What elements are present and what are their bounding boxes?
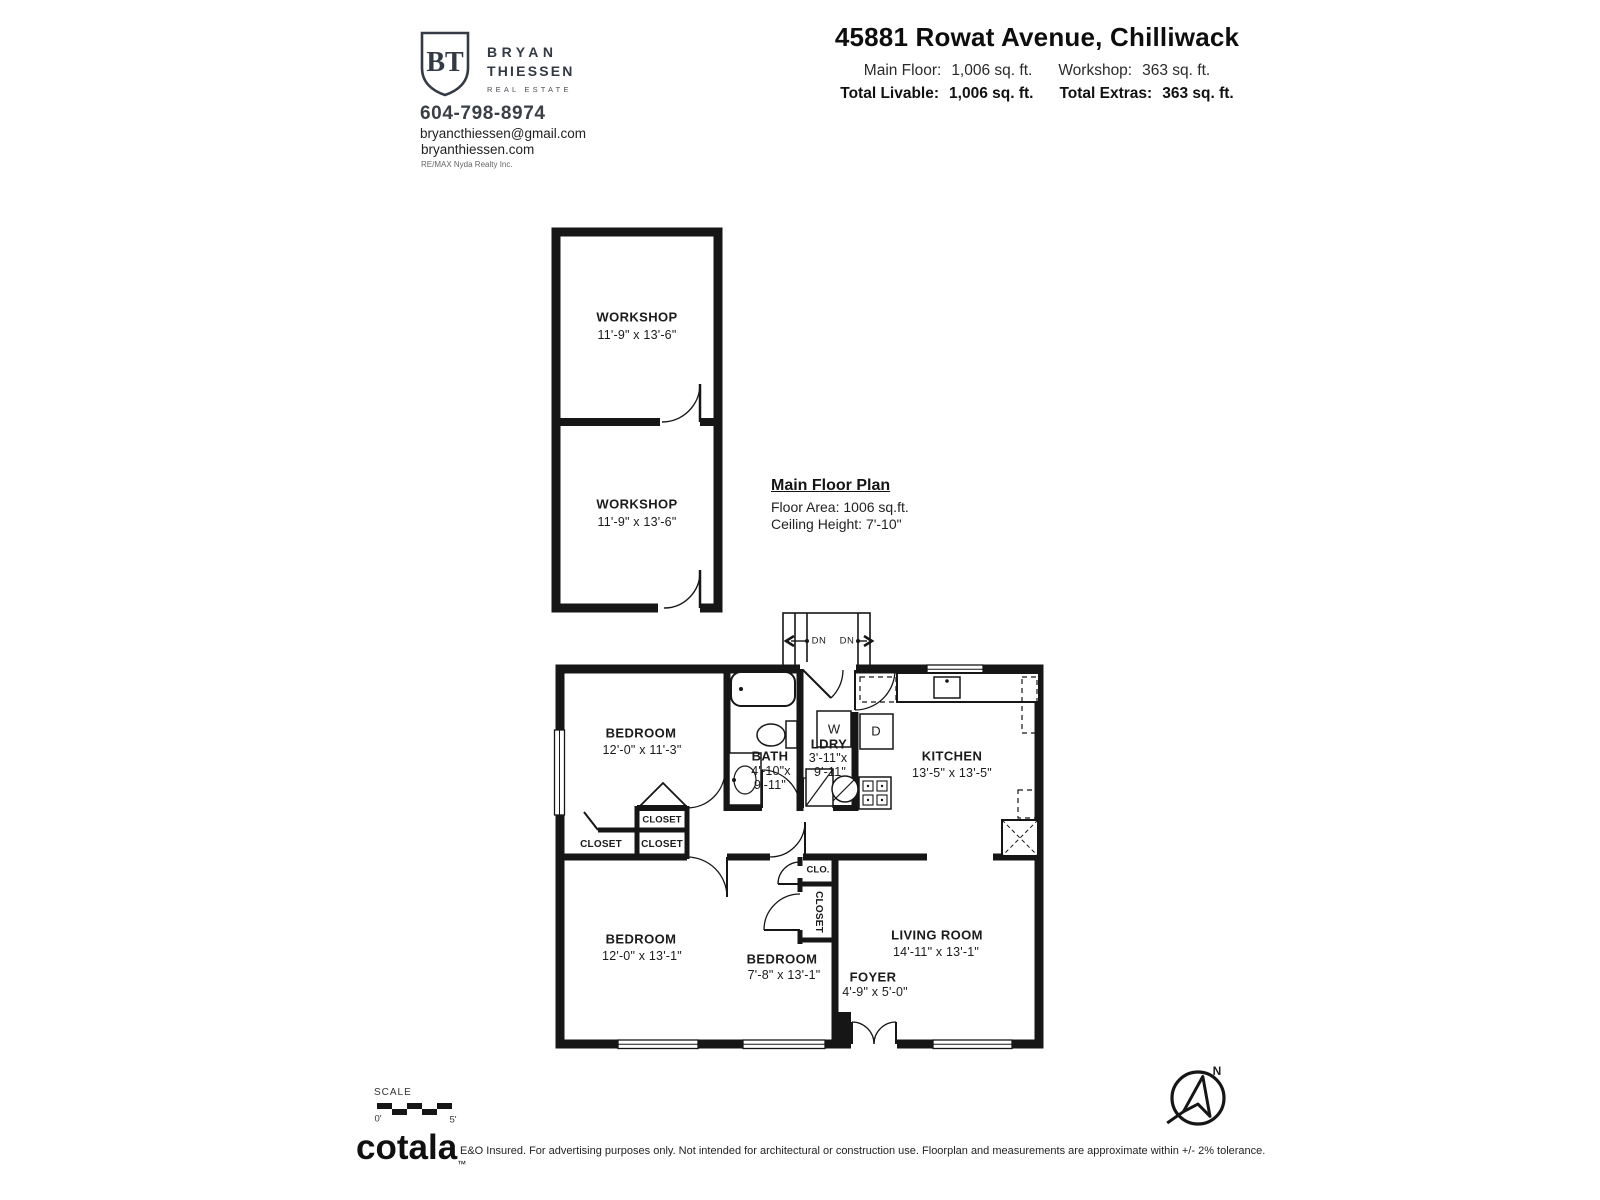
- plan-note-floor-area: Floor Area: 1006 sq.ft.: [771, 499, 909, 516]
- workshop-walls: [552, 232, 718, 617]
- area-totals-row: Total Livable:1,006 sq. ft.Total Extras:…: [817, 85, 1257, 103]
- room-label-workshop2: WORKSHOP: [596, 498, 677, 511]
- closet-label-clo: CLO.: [806, 865, 829, 875]
- room-dims-bedroom3: 7'-8" x 13'-1": [748, 969, 821, 982]
- dryer-label: D: [871, 725, 880, 738]
- agent-phone: 604-798-8974: [420, 103, 546, 125]
- agent-last-name: THIESSEN: [487, 63, 575, 79]
- room-label-bath: BATH: [752, 750, 789, 763]
- scale-start-label: 0': [374, 1114, 381, 1125]
- room-dims-bath-2: 9'-11": [754, 779, 786, 792]
- listing-header: 45881 Rowat Avenue, Chilliwack Main Floo…: [817, 22, 1257, 103]
- room-dims-kitchen: 13'-5" x 13'-5": [912, 767, 992, 780]
- cotala-trademark: ™: [457, 1159, 466, 1169]
- room-label-living-room: LIVING ROOM: [891, 929, 983, 942]
- workshop-label: Workshop:: [1058, 62, 1132, 79]
- stairs-down-label-1: DN: [812, 636, 827, 646]
- main-floor-value: 1,006 sq. ft.: [951, 62, 1032, 79]
- room-dims-workshop1: 11'-9" x 13'-6": [598, 329, 677, 342]
- room-dims-bath-1: 4'-10"x: [751, 765, 791, 778]
- listing-address-title: 45881 Rowat Avenue, Chilliwack: [817, 22, 1257, 53]
- closet-label-mid: CLOSET: [641, 840, 683, 850]
- room-label-bedroom3: BEDROOM: [747, 953, 818, 966]
- workshop-value: 363 sq. ft.: [1142, 62, 1210, 79]
- room-label-workshop1: WORKSHOP: [596, 311, 677, 324]
- agent-logo-initials: BT: [426, 47, 464, 78]
- cotala-logo-text: cotala: [356, 1128, 457, 1167]
- closet-label-top: CLOSET: [642, 815, 681, 825]
- plan-note-ceiling-height: Ceiling Height: 7'-10": [771, 516, 909, 533]
- stairs-down-label-2: DN: [840, 636, 855, 646]
- north-arrow-icon: [1167, 1072, 1224, 1130]
- main-floor-plan-note: Main Floor Plan Floor Area: 1006 sq.ft. …: [771, 477, 909, 533]
- scale-label: SCALE: [374, 1087, 412, 1098]
- north-label: N: [1213, 1064, 1222, 1078]
- area-stats-row: Main Floor:1,006 sq. ft.Workshop:363 sq.…: [817, 62, 1257, 80]
- scale-bar: [377, 1103, 452, 1115]
- closet-label-vertical: CLOSET: [813, 891, 823, 933]
- agent-email: bryancthiessen@gmail.com: [420, 126, 586, 141]
- disclaimer-text: E&O Insured. For advertising purposes on…: [460, 1145, 1265, 1157]
- washer-label: W: [828, 723, 840, 736]
- room-label-bedroom1: BEDROOM: [606, 727, 677, 740]
- room-label-bedroom2: BEDROOM: [606, 933, 677, 946]
- agent-first-name: BRYAN: [487, 44, 575, 60]
- room-label-laundry: LDRY: [811, 738, 848, 751]
- closet-label-left: CLOSET: [580, 840, 622, 850]
- scale-end-label: 5': [449, 1115, 456, 1126]
- agent-brokerage: RE/MAX Nyda Realty Inc.: [421, 160, 513, 169]
- room-dims-laundry-2: 9'-11": [814, 766, 846, 779]
- room-dims-bedroom2: 12'-0" x 13'-1": [602, 950, 682, 963]
- room-dims-living-room: 14'-11" x 13'-1": [893, 946, 979, 959]
- floorplan-linework: [0, 0, 1600, 1200]
- total-livable-value: 1,006 sq. ft.: [949, 85, 1033, 102]
- agent-brand: BRYAN THIESSEN REAL ESTATE: [487, 44, 575, 94]
- agent-logo-shield-icon: BT: [418, 30, 472, 98]
- room-dims-foyer: 4'-9" x 5'-0": [842, 986, 908, 999]
- kitchen-fixtures: [859, 673, 1039, 856]
- floorplan-page: BT BRYAN THIESSEN REAL ESTATE 604-798-89…: [0, 0, 1600, 1200]
- stairs: [783, 613, 872, 666]
- total-extras-value: 363 sq. ft.: [1162, 85, 1234, 102]
- agent-tagline: REAL ESTATE: [487, 85, 575, 94]
- room-dims-bedroom1: 12'-0" x 11'-3": [603, 744, 682, 757]
- plan-note-title: Main Floor Plan: [771, 477, 909, 495]
- total-livable-label: Total Livable:: [840, 85, 939, 102]
- room-label-kitchen: KITCHEN: [922, 750, 983, 763]
- room-label-foyer: FOYER: [850, 971, 897, 984]
- cotala-logo: cotala™: [356, 1128, 466, 1169]
- total-extras-label: Total Extras:: [1059, 85, 1152, 102]
- room-dims-laundry-1: 3'-11"x: [809, 752, 848, 765]
- agent-website: bryanthiessen.com: [421, 142, 534, 157]
- main-floor-label: Main Floor:: [864, 62, 942, 79]
- room-dims-workshop2: 11'-9" x 13'-6": [598, 516, 677, 529]
